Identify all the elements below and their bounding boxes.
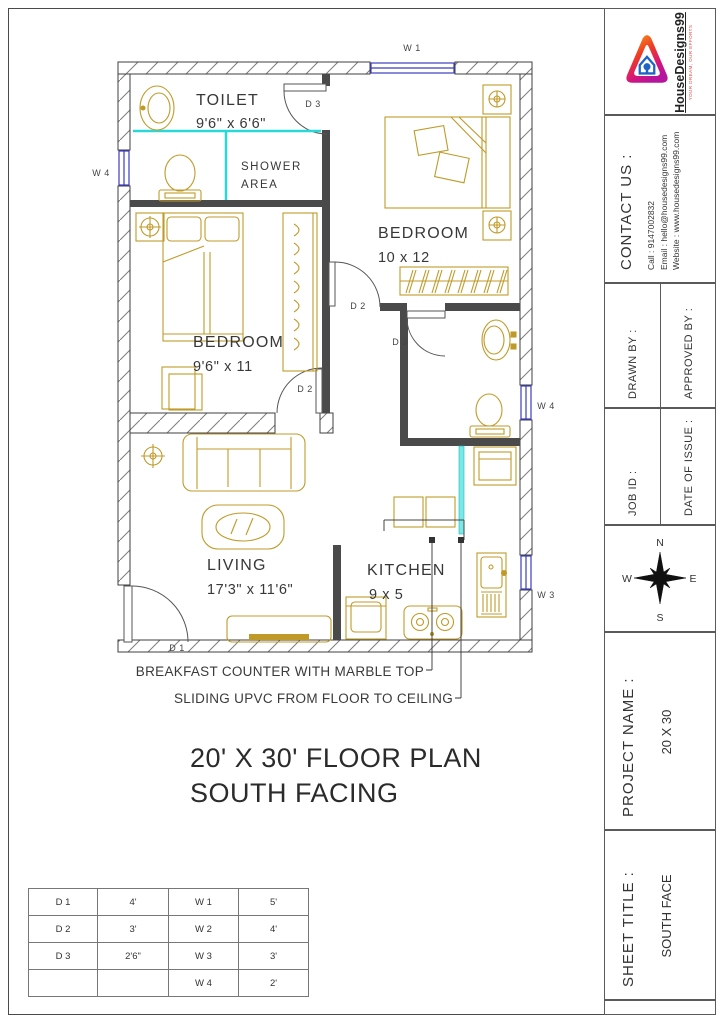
schedule-row: D 3 2'6" W 3 3' [29, 943, 309, 970]
kitchen-label: KITCHEN [367, 562, 446, 579]
sofa [183, 434, 305, 491]
logo-wordmark: HouseDesigns99 [673, 9, 687, 116]
breakfast-counter-edge [384, 520, 464, 540]
toilet-label: TOILET [196, 92, 259, 109]
door-size: 4' [98, 889, 169, 916]
compass-w: W [622, 573, 632, 585]
tag-w4-right: W 4 [537, 401, 555, 411]
schedule-row: D 2 3' W 2 4' [29, 916, 309, 943]
tag-w4-left: W 4 [92, 168, 110, 178]
window-size: 2' [239, 970, 309, 997]
bath-wc [470, 394, 510, 437]
tag-d1: D 1 [169, 643, 185, 653]
window-id: W 1 [169, 889, 239, 916]
master-bedroom-dims: 10 x 12 [378, 250, 430, 266]
window-w4-left [119, 151, 129, 185]
project-name-label: PROJECT NAME : [617, 633, 641, 831]
bedroom-fan [136, 213, 164, 241]
door-size: 3' [98, 916, 169, 943]
compass-box: N E S W [604, 525, 716, 632]
stove [404, 606, 462, 639]
second-bed [163, 213, 243, 341]
contact-heading: CONTACT US : [615, 116, 639, 284]
logo-tagline: YOUR DREAM, OUR EFFORTS [687, 9, 694, 116]
toilet-sink [140, 86, 174, 130]
shower-label-2: AREA [241, 179, 278, 191]
sliding-upvc-panel [459, 446, 464, 534]
contact-box: CONTACT US : Call : 9147002832 Email : h… [604, 115, 716, 283]
schedule-row: D 1 4' W 1 5' [29, 889, 309, 916]
window-size: 3' [239, 943, 309, 970]
drawing-sheet: TOILET 9'6" x 6'6" SHOWER AREA BEDROOM 1… [0, 0, 724, 1024]
plan-title-line2: SOUTH FACING [190, 778, 399, 808]
contact-email: Email : hello@housedesigns99.com [658, 116, 671, 284]
compass-n: N [656, 537, 664, 549]
door-window-schedule: D 1 4' W 1 5' D 2 3' W 2 4' D 3 2'6" W 3… [28, 888, 309, 997]
tag-d3-toilet: D 3 [305, 99, 321, 109]
window-id: W 3 [169, 943, 239, 970]
interior-walls [130, 74, 520, 640]
kitchen-sink [477, 553, 507, 617]
compass-s: S [656, 612, 663, 624]
fridge [474, 447, 516, 485]
tag-d2-bedroom: D 2 [297, 384, 313, 394]
living-dims: 17'3" x 11'6" [207, 582, 293, 598]
date-of-issue-label: DATE OF ISSUE : [661, 409, 717, 526]
schedule-row: W 4 2' [29, 970, 309, 997]
tag-w3: W 3 [537, 590, 555, 600]
annotation-breakfast: BREAKFAST COUNTER WITH MARBLE TOP [136, 664, 424, 679]
compass-e: E [689, 573, 696, 585]
door-id [29, 970, 98, 997]
door-id: D 1 [29, 889, 98, 916]
contact-website: Website : www.housedesigns99.com [670, 116, 683, 284]
master-wardrobe [400, 267, 508, 295]
door-id: D 3 [29, 943, 98, 970]
drawn-by-box: DRAWN BY : [604, 283, 661, 408]
sheet-title-label: SHEET TITLE : [617, 831, 641, 1001]
approved-by-label: APPROVED BY : [661, 284, 717, 409]
tag-d2-master: D 2 [350, 301, 366, 311]
second-bedroom-label: BEDROOM [193, 334, 284, 351]
title-block-filler [604, 1000, 716, 1015]
second-bedroom-dims: 9'6" x 11 [193, 359, 253, 375]
master-bed [385, 117, 510, 208]
job-id-box: JOB ID : [604, 408, 661, 525]
window-id: W 2 [169, 916, 239, 943]
master-bedroom-label: BEDROOM [378, 225, 469, 242]
bath-sink [482, 320, 516, 360]
sheet-title-value: SOUTH FACE [657, 831, 677, 1001]
nightstand-lamps [483, 85, 511, 240]
tv-unit [227, 616, 331, 642]
compass-rose: N E S W [605, 526, 715, 631]
window-w3 [521, 556, 531, 589]
door-d3-toilet [284, 84, 327, 134]
sheet-title-box: SHEET TITLE : SOUTH FACE [604, 830, 716, 1000]
door-d3-bath [407, 311, 445, 356]
window-w4-right [521, 386, 531, 419]
toilet-dims: 9'6" x 6'6" [196, 116, 266, 132]
breakfast-stools [394, 497, 455, 527]
coffee-table [202, 505, 284, 549]
door-size [98, 970, 169, 997]
window-size: 4' [239, 916, 309, 943]
job-id-label: JOB ID : [605, 409, 661, 526]
approved-by-box: APPROVED BY : [660, 283, 716, 408]
kitchen-appliance [346, 597, 386, 639]
drawn-by-label: DRAWN BY : [605, 284, 661, 409]
contact-phone: Call : 9147002832 [645, 116, 658, 284]
door-d1 [124, 586, 188, 642]
living-fan [141, 444, 165, 468]
kitchen-dims: 9 x 5 [369, 587, 403, 603]
window-size: 5' [239, 889, 309, 916]
logo-box: HouseDesigns99 YOUR DREAM, OUR EFFORTS [604, 8, 716, 115]
window-w1 [371, 63, 454, 73]
door-size: 2'6" [98, 943, 169, 970]
door-id: D 2 [29, 916, 98, 943]
project-name-box: PROJECT NAME : 20 X 30 [604, 632, 716, 830]
tag-w1: W 1 [403, 43, 421, 53]
project-name-value: 20 X 30 [657, 633, 677, 831]
annotation-sliding: SLIDING UPVC FROM FLOOR TO CEILING [174, 691, 453, 706]
living-label: LIVING [207, 557, 267, 574]
second-wardrobe [283, 213, 317, 371]
window-id: W 4 [169, 970, 239, 997]
plan-title-line1: 20' X 30' FLOOR PLAN [190, 743, 482, 773]
tag-d3-bath: D 3 [392, 337, 408, 347]
shower-label-1: SHOWER [241, 161, 302, 173]
toilet-wc [159, 155, 201, 201]
date-of-issue-box: DATE OF ISSUE : [660, 408, 716, 525]
